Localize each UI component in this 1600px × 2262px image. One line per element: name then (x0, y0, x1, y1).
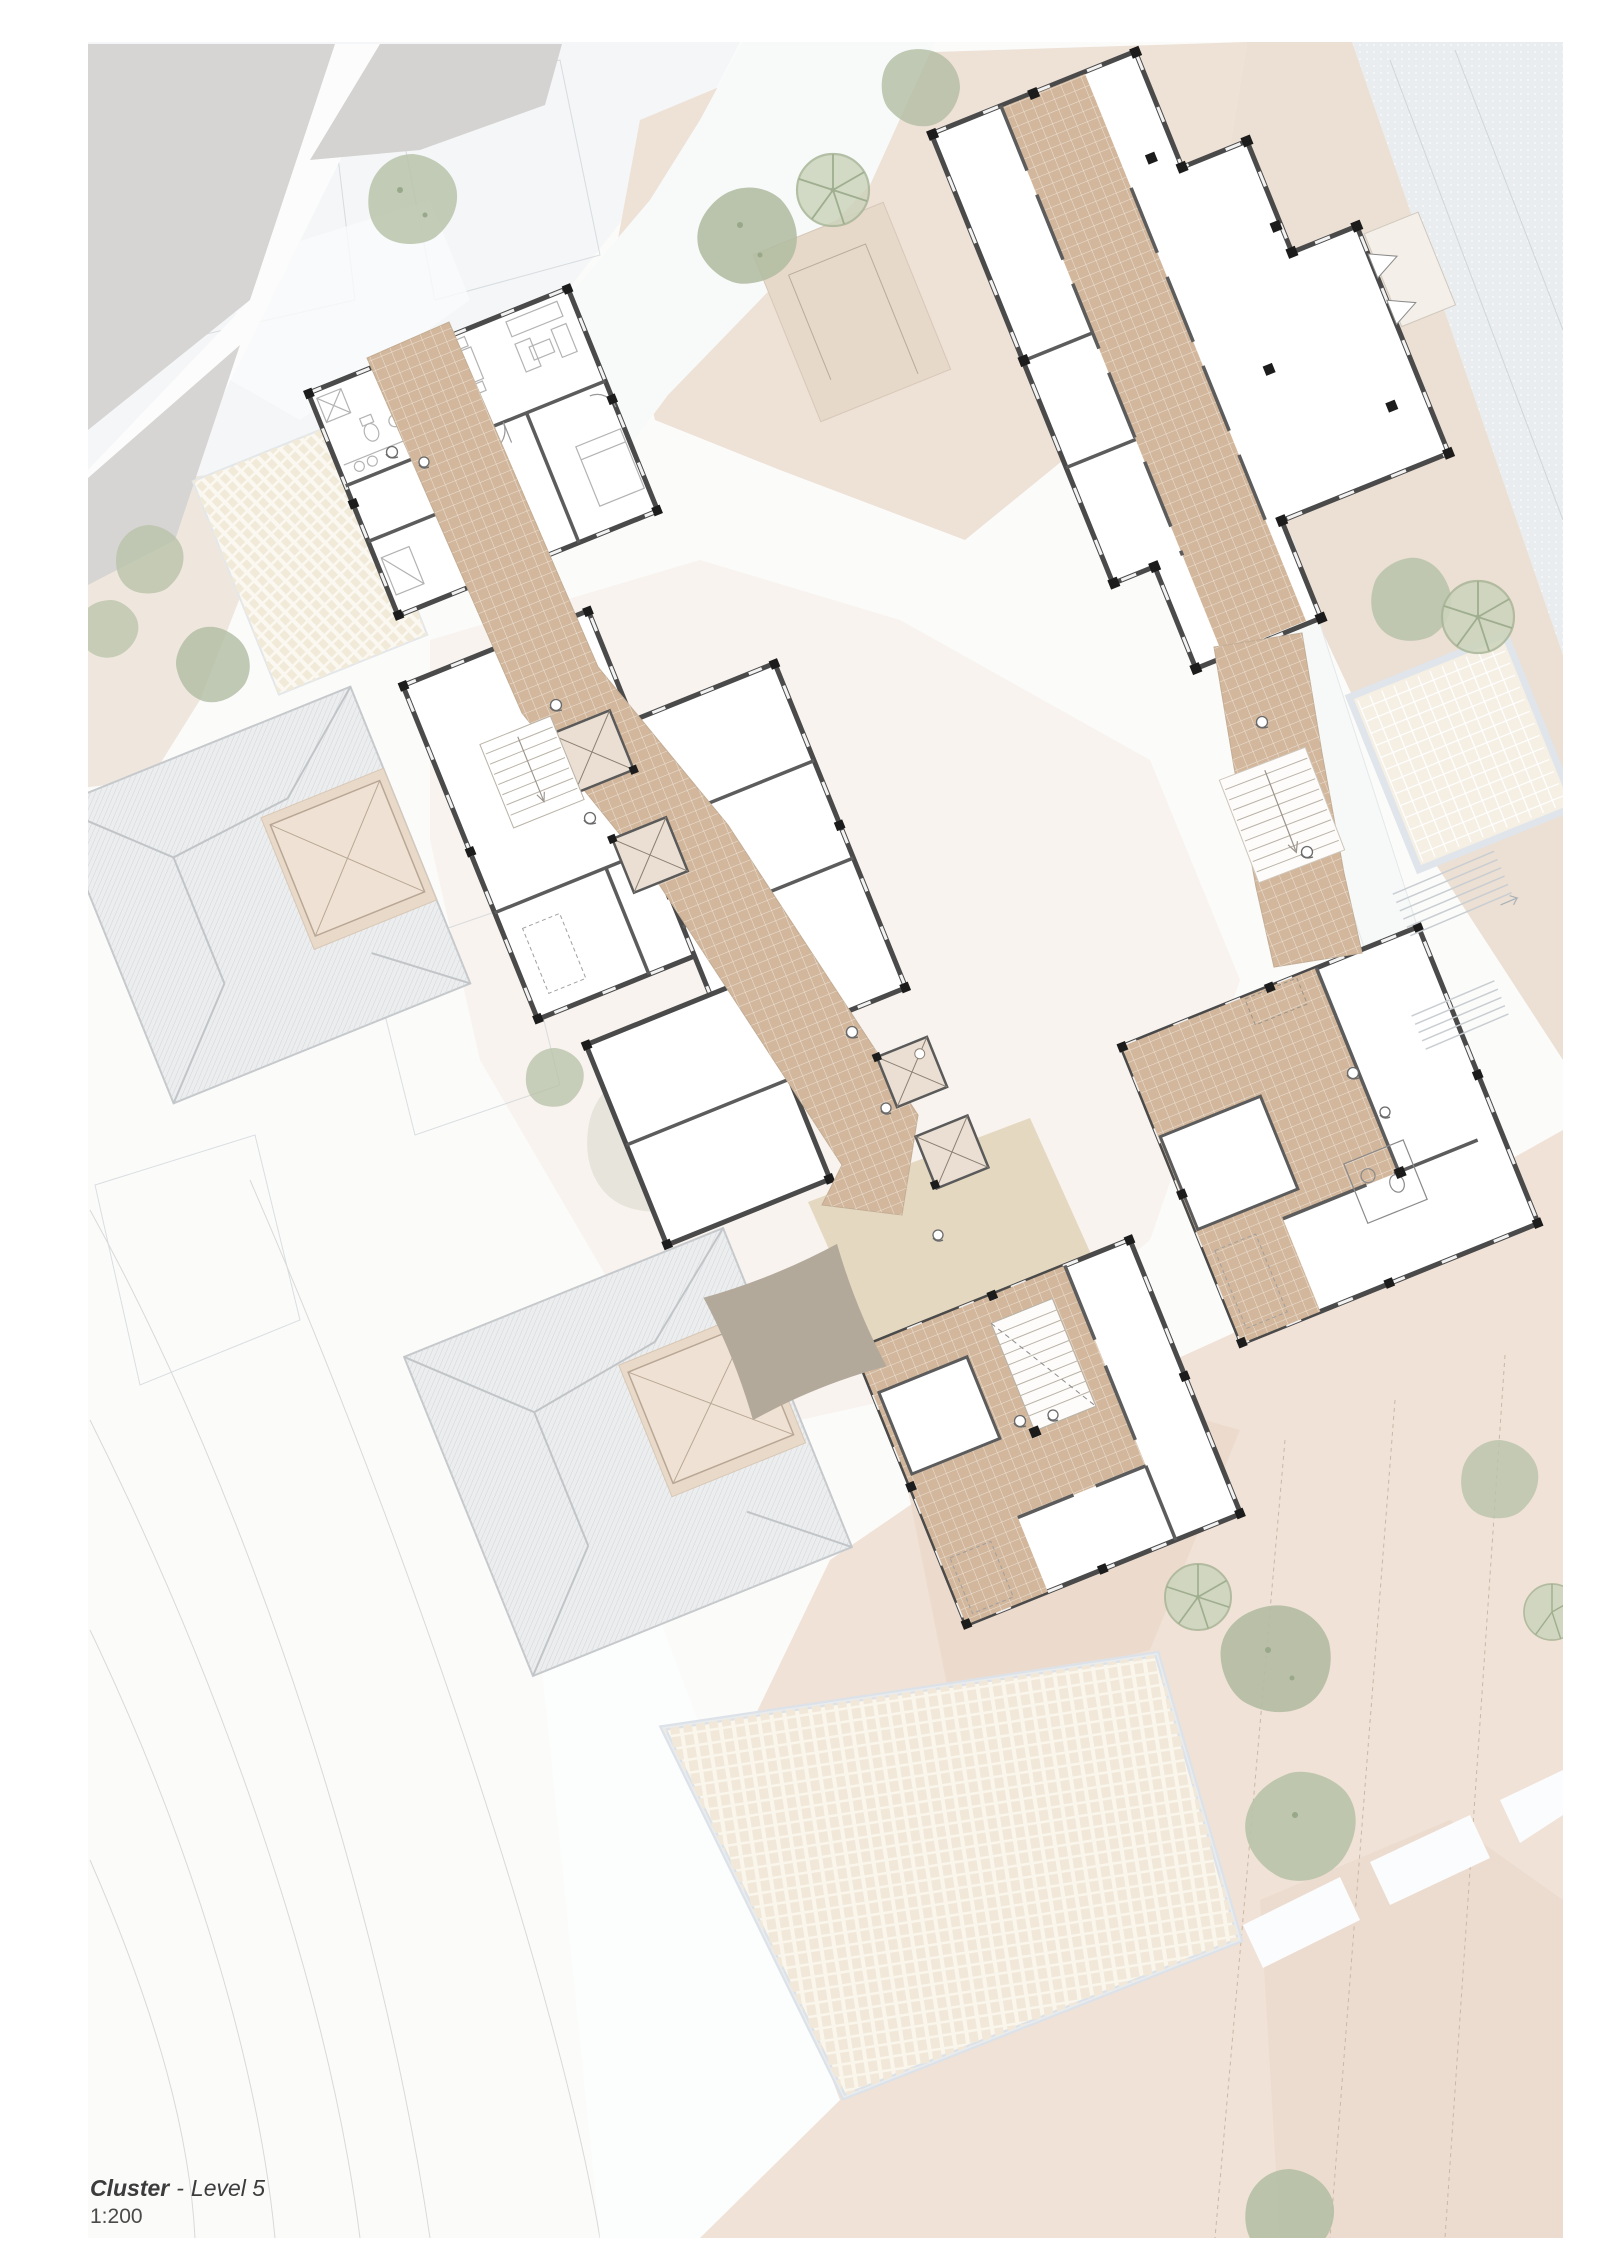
person-icon (584, 813, 596, 825)
person-icon (846, 1027, 858, 1039)
site-plan-page: Cluster-Level 5 1:200 (0, 0, 1600, 2262)
round-tree-icon (1442, 581, 1514, 653)
person-icon (1347, 1068, 1359, 1080)
site-plan-drawing: Cluster-Level 5 1:200 (0, 0, 1600, 2262)
person-icon (1301, 847, 1313, 859)
person-icon (386, 447, 398, 459)
plan-scale: 1:200 (90, 2205, 143, 2228)
person-icon (1256, 717, 1268, 729)
person-icon (550, 700, 562, 712)
plan-title: Cluster-Level 5 (90, 2175, 265, 2201)
round-tree-icon (797, 154, 869, 226)
round-tree-icon (1165, 1564, 1231, 1630)
person-icon (1014, 1416, 1026, 1428)
